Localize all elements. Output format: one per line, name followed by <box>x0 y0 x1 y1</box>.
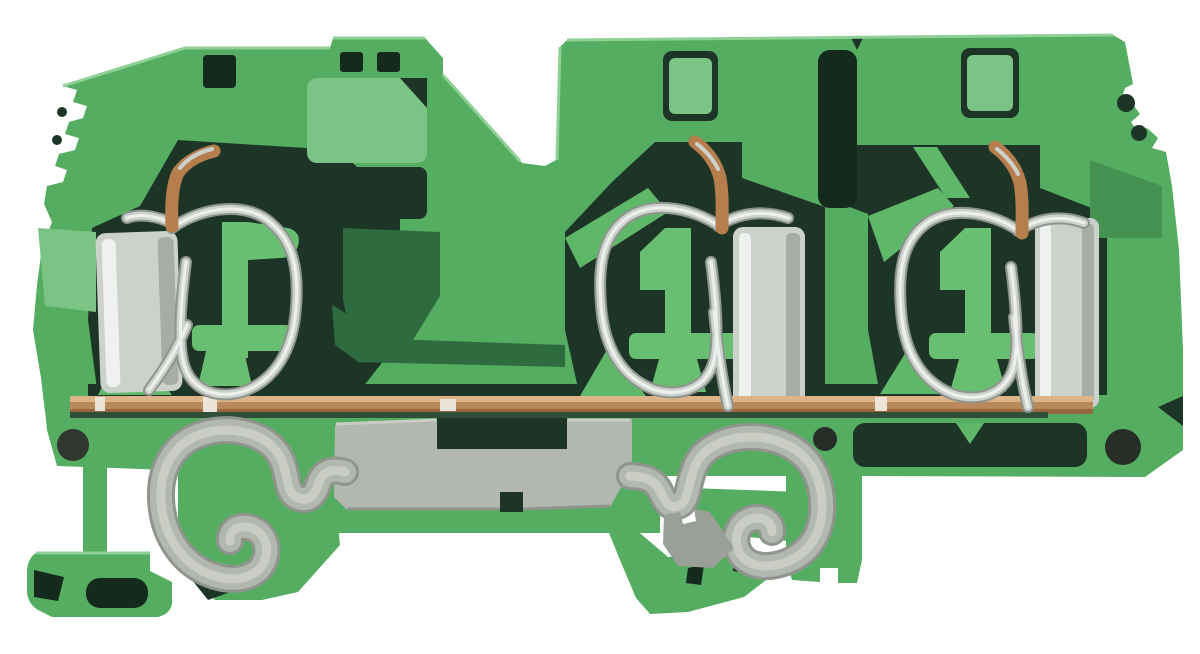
left-edge-dimple-2 <box>52 135 62 145</box>
right-foot-notch-1 <box>686 565 704 585</box>
pusher-left-base <box>198 351 252 386</box>
latch-bottom-notch <box>500 490 523 512</box>
marking-tab-slot-2 <box>377 52 400 72</box>
plate-right-highlight <box>1040 224 1051 402</box>
center-mounting-hole <box>813 427 837 451</box>
divider-slot <box>818 50 857 208</box>
middle-test-socket <box>669 58 712 114</box>
plate-middle-highlight <box>739 233 751 405</box>
busbar-glint <box>875 397 887 411</box>
right-edge-dimple-2 <box>1131 125 1147 141</box>
left-face-window <box>38 228 96 312</box>
left-recessed-window <box>307 78 427 163</box>
terminal-block-illustration <box>0 0 1200 654</box>
marking-tab-slot-1 <box>340 52 363 72</box>
busbar-glint <box>95 397 105 411</box>
foot-slot <box>86 578 148 608</box>
clamp-plate-right <box>1035 218 1099 408</box>
latch-cutout-window <box>437 417 567 449</box>
right-edge-dimple-1 <box>1117 94 1135 112</box>
right-test-socket <box>967 55 1013 111</box>
left-face-socket <box>203 55 236 88</box>
plate-right-shade <box>1082 224 1094 402</box>
busbar-glint <box>440 399 456 411</box>
product-photo <box>0 0 1200 654</box>
right-mounting-hole <box>1105 429 1141 465</box>
left-dark-window <box>343 167 427 219</box>
left-mounting-hole <box>57 429 89 461</box>
plate-middle-shade <box>786 233 800 405</box>
pusher-left-crossbar <box>192 325 292 351</box>
clamp-plate-middle <box>733 227 805 411</box>
left-edge-dimple-1 <box>57 107 67 117</box>
